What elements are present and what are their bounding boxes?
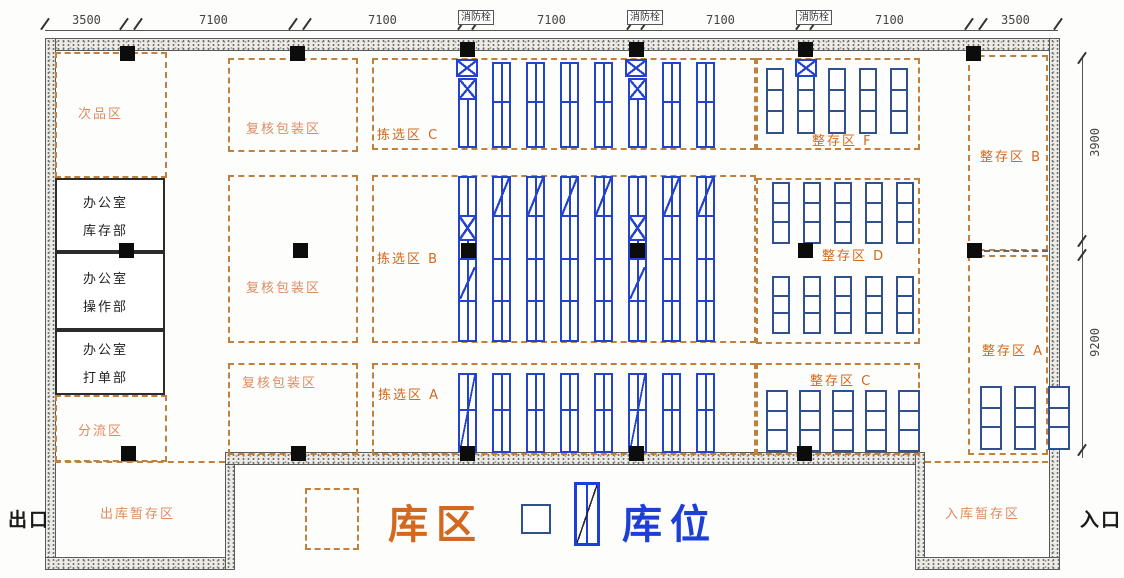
column-pillar — [291, 446, 306, 461]
pallet-column — [766, 68, 784, 134]
hydrant-x-marker — [625, 59, 647, 77]
pallet-column — [865, 276, 883, 334]
pallet-column — [865, 182, 883, 244]
rack-slot — [458, 176, 477, 342]
rack-slot — [628, 78, 647, 148]
wall-segment — [45, 557, 235, 570]
dim-label: 7100 — [537, 13, 566, 27]
pallet-column — [896, 276, 914, 334]
zone-label-sorting: 分流区 — [78, 420, 123, 439]
hydrant-x-marker — [795, 59, 817, 77]
rack-slot — [492, 62, 511, 148]
column-pillar — [630, 243, 645, 258]
dimension-tick — [119, 18, 129, 31]
inbound-staging-boundary — [925, 461, 1048, 463]
rack-slot — [560, 176, 579, 342]
zone-label-inbound-staging: 入库暂存区 — [945, 503, 1020, 522]
legend-zone-label: 库区 — [388, 492, 484, 550]
wall-segment — [915, 452, 925, 570]
dimension-tick — [288, 18, 298, 31]
dimension-tick — [1053, 18, 1063, 31]
rack-slot — [492, 176, 511, 342]
outbound-staging-boundary — [55, 461, 225, 463]
rack-slot — [662, 62, 681, 148]
zone-label-bulk-c: 整存区 C — [810, 370, 872, 389]
dimension-tick — [302, 18, 312, 31]
zone-label-pick-a: 拣选区 A — [378, 384, 440, 403]
pallet-column — [980, 386, 1002, 450]
wall-segment — [45, 38, 1060, 51]
zone-label-bulk-d: 整存区 D — [822, 245, 885, 264]
dept-label: 操作部 — [83, 296, 163, 315]
fire-hydrant-label: 消防栓 — [627, 10, 663, 25]
rack-slot — [594, 62, 613, 148]
rack-slot — [526, 62, 545, 148]
pallet-column — [898, 390, 920, 452]
right-dimension-line — [1082, 58, 1083, 458]
column-pillar — [119, 243, 134, 258]
wall-segment — [1049, 38, 1060, 570]
pallet-column — [865, 390, 887, 452]
rack-band-a — [458, 373, 715, 453]
rack-slot — [492, 373, 511, 453]
pallet-column — [1048, 386, 1070, 450]
zone-box-repack-mid — [228, 175, 358, 343]
pallet-grid-d-bottom — [772, 276, 914, 334]
pallet-column — [832, 390, 854, 452]
office-billing-room: 办公室 打单部 — [55, 330, 165, 395]
dimension-tick — [40, 18, 50, 31]
rack-slot — [696, 62, 715, 148]
rack-slot — [458, 373, 477, 453]
column-pillar — [460, 446, 475, 461]
dim-label: 7100 — [199, 13, 228, 27]
pallet-column — [890, 68, 908, 134]
zone-label-outbound-staging: 出库暂存区 — [100, 503, 175, 522]
warehouse-floorplan: 3500 7100 7100 7100 7100 7100 3500 消防栓 消… — [0, 0, 1124, 578]
rack-x-cell — [630, 80, 645, 100]
fire-hydrant-label: 消防栓 — [458, 10, 494, 25]
entrance-label: 入口 — [1080, 505, 1122, 532]
wall-segment — [225, 452, 235, 570]
zone-label-bulk-f: 整存区 F — [812, 130, 873, 149]
pallet-column — [803, 182, 821, 244]
rack-slot — [458, 78, 477, 148]
pallet-column — [1014, 386, 1036, 450]
hydrant-x-marker — [456, 59, 478, 77]
column-pillar — [460, 42, 475, 57]
pallet-column — [834, 276, 852, 334]
zone-label-pick-c: 拣选区 C — [377, 124, 439, 143]
zone-label-repack-mid: 复核包装区 — [246, 277, 321, 296]
partition-dash-line — [984, 250, 1048, 252]
zone-label-bulk-b: 整存区 B — [980, 146, 1042, 165]
legend-slot-label: 库位 — [622, 492, 718, 550]
pallet-column — [772, 182, 790, 244]
top-dimension-line — [45, 30, 1058, 31]
dimension-tick — [978, 18, 988, 31]
dim-label: 3500 — [1001, 13, 1030, 27]
column-pillar — [966, 46, 981, 61]
legend-slot-square — [521, 504, 551, 534]
rack-slot — [662, 176, 681, 342]
pallet-column — [766, 390, 788, 452]
office-label: 办公室 — [83, 268, 163, 287]
column-pillar — [798, 243, 813, 258]
rack-slot — [560, 62, 579, 148]
office-inventory-room: 办公室 库存部 — [55, 178, 165, 252]
wall-segment — [915, 557, 1060, 570]
rack-band-b — [458, 176, 715, 342]
column-pillar — [629, 446, 644, 461]
rack-x-cell — [628, 215, 647, 241]
pallet-grid-c — [766, 390, 920, 452]
legend-zone-swatch — [305, 488, 359, 550]
dimension-tick — [133, 18, 143, 31]
dim-label: 7100 — [706, 13, 735, 27]
pallet-column — [896, 182, 914, 244]
rack-slot — [526, 176, 545, 342]
rack-x-cell — [458, 215, 477, 241]
pallet-column — [803, 276, 821, 334]
rack-slot — [628, 373, 647, 453]
column-pillar — [629, 42, 644, 57]
dept-label: 打单部 — [83, 367, 163, 386]
column-pillar — [293, 243, 308, 258]
rack-slot — [526, 373, 545, 453]
dim-label: 7100 — [368, 13, 397, 27]
dim-label: 9200 — [1088, 328, 1102, 357]
pallet-grid-f — [766, 68, 908, 134]
office-label: 办公室 — [83, 192, 163, 211]
legend-rack-symbol — [574, 482, 600, 546]
column-pillar — [121, 446, 136, 461]
rack-slot — [696, 373, 715, 453]
dim-label: 3900 — [1088, 128, 1102, 157]
rack-slot — [594, 176, 613, 342]
pallet-grid-a — [980, 386, 1070, 450]
column-pillar — [798, 42, 813, 57]
pallet-column — [799, 390, 821, 452]
pallet-column — [859, 68, 877, 134]
pallet-column — [797, 68, 815, 134]
rack-slot — [594, 373, 613, 453]
rack-slot — [696, 176, 715, 342]
zone-label-bulk-a: 整存区 A — [982, 340, 1044, 359]
zone-box-repack-top — [228, 58, 358, 152]
column-pillar — [797, 446, 812, 461]
pallet-column — [834, 182, 852, 244]
dimension-tick — [964, 18, 974, 31]
column-pillar — [120, 46, 135, 61]
zone-label-defective: 次品区 — [78, 103, 123, 122]
fire-hydrant-label: 消防栓 — [796, 10, 832, 25]
office-label: 办公室 — [83, 339, 163, 358]
rack-x-cell — [460, 80, 475, 100]
zone-label-pick-b: 拣选区 B — [377, 248, 439, 267]
pallet-grid-d-top — [772, 182, 914, 244]
dept-label: 库存部 — [83, 220, 163, 239]
rack-slot — [560, 373, 579, 453]
zone-label-repack-bottom: 复核包装区 — [242, 372, 317, 391]
zone-label-repack-top: 复核包装区 — [246, 118, 321, 137]
exit-label: 出口 — [8, 505, 50, 532]
pallet-column — [772, 276, 790, 334]
column-pillar — [461, 243, 476, 258]
column-pillar — [967, 243, 982, 258]
rack-band-c — [458, 62, 715, 148]
rack-slot — [628, 176, 647, 342]
rack-slot — [662, 373, 681, 453]
column-pillar — [290, 46, 305, 61]
office-operation-room: 办公室 操作部 — [55, 252, 165, 330]
dim-label: 7100 — [875, 13, 904, 27]
dim-label: 3500 — [72, 13, 101, 27]
pallet-column — [828, 68, 846, 134]
